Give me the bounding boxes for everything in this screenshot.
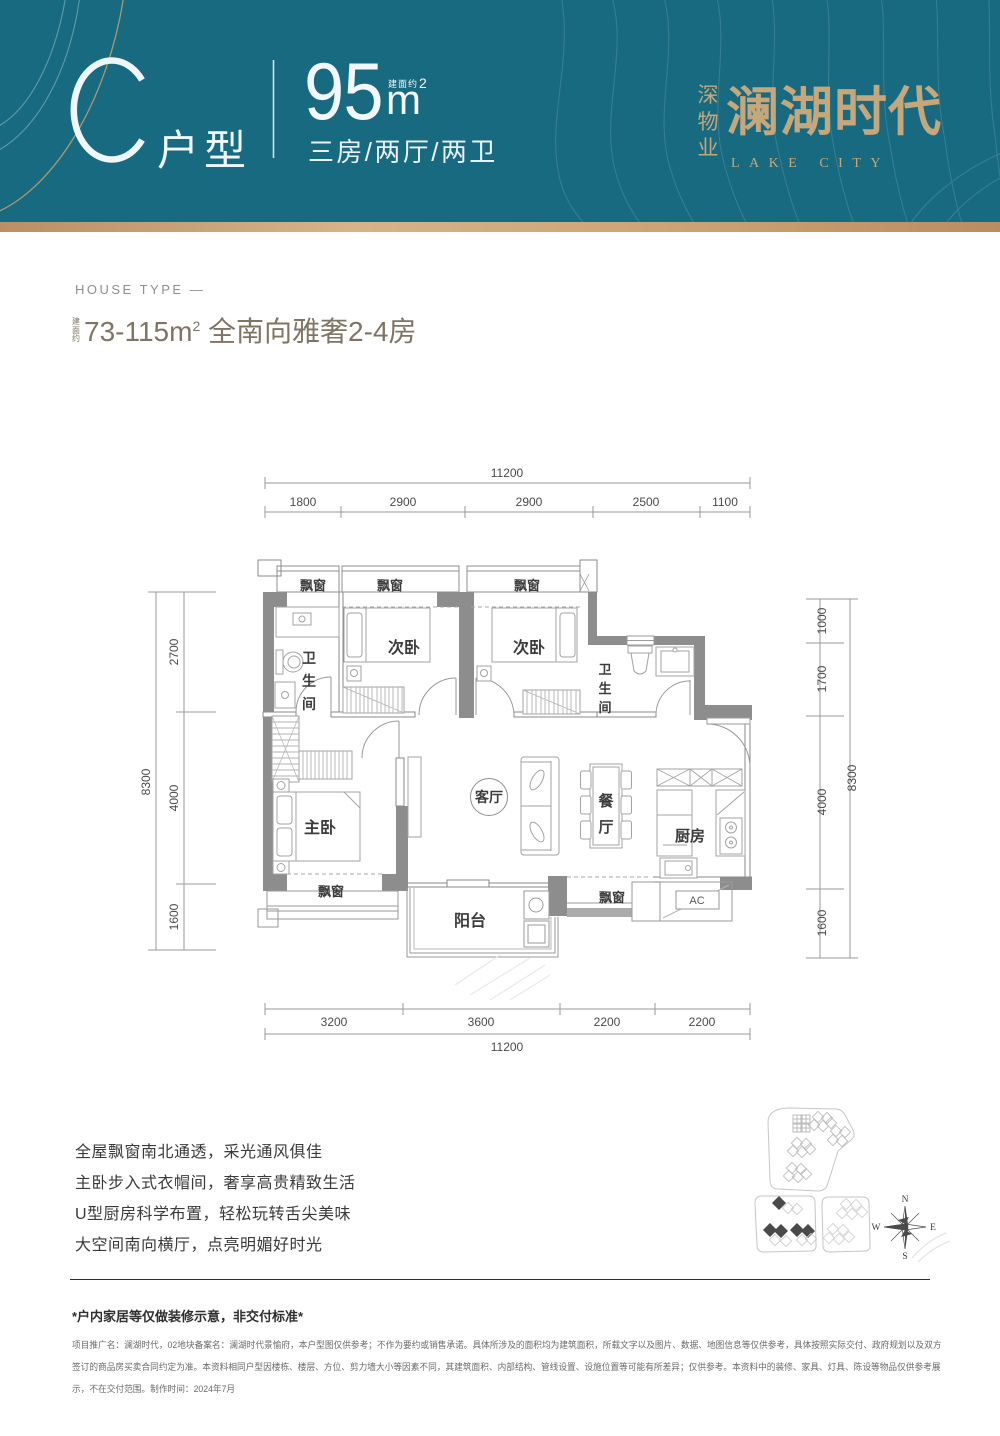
svg-text:厅: 厅 xyxy=(598,819,613,836)
svg-text:间: 间 xyxy=(598,700,611,715)
svg-text:2500: 2500 xyxy=(633,495,660,509)
svg-text:S: S xyxy=(902,1252,907,1262)
svg-text:1800: 1800 xyxy=(290,495,317,509)
svg-text:2200: 2200 xyxy=(689,1015,716,1029)
svg-text:2900: 2900 xyxy=(516,495,543,509)
svg-text:次卧: 次卧 xyxy=(513,638,545,657)
svg-text:主卧: 主卧 xyxy=(304,818,336,837)
svg-text:2700: 2700 xyxy=(167,638,181,665)
svg-text:飘窗: 飘窗 xyxy=(514,578,540,593)
svg-text:W: W xyxy=(872,1223,881,1233)
svg-text:1600: 1600 xyxy=(167,903,181,930)
svg-text:2200: 2200 xyxy=(594,1015,621,1029)
svg-text:4000: 4000 xyxy=(815,788,829,815)
svg-text:AC: AC xyxy=(689,895,704,907)
svg-text:飘窗: 飘窗 xyxy=(599,890,625,905)
svg-text:1100: 1100 xyxy=(712,495,738,509)
svg-text:3600: 3600 xyxy=(468,1015,495,1029)
svg-text:卫: 卫 xyxy=(598,662,611,677)
svg-text:卫: 卫 xyxy=(302,650,316,666)
svg-text:次卧: 次卧 xyxy=(388,638,420,657)
svg-text:间: 间 xyxy=(302,696,316,712)
svg-text:E: E xyxy=(930,1223,936,1233)
svg-text:11200: 11200 xyxy=(491,466,524,480)
svg-text:厨房: 厨房 xyxy=(675,827,705,845)
svg-text:1700: 1700 xyxy=(815,665,829,692)
svg-text:1600: 1600 xyxy=(815,909,829,936)
svg-text:8300: 8300 xyxy=(139,768,153,795)
svg-text:飘窗: 飘窗 xyxy=(300,578,326,593)
svg-text:2900: 2900 xyxy=(390,495,417,509)
svg-text:飘窗: 飘窗 xyxy=(377,578,403,593)
svg-text:1000: 1000 xyxy=(815,607,829,634)
svg-text:4000: 4000 xyxy=(167,784,181,811)
svg-text:飘窗: 飘窗 xyxy=(318,884,344,899)
svg-text:餐: 餐 xyxy=(598,792,614,810)
svg-text:生: 生 xyxy=(302,673,316,689)
svg-text:N: N xyxy=(902,1195,909,1205)
svg-text:阳台: 阳台 xyxy=(454,911,486,930)
svg-text:8300: 8300 xyxy=(845,764,859,791)
svg-text:3200: 3200 xyxy=(321,1015,348,1029)
svg-text:客厅: 客厅 xyxy=(474,789,503,805)
svg-text:生: 生 xyxy=(598,681,611,696)
svg-text:11200: 11200 xyxy=(491,1040,524,1054)
